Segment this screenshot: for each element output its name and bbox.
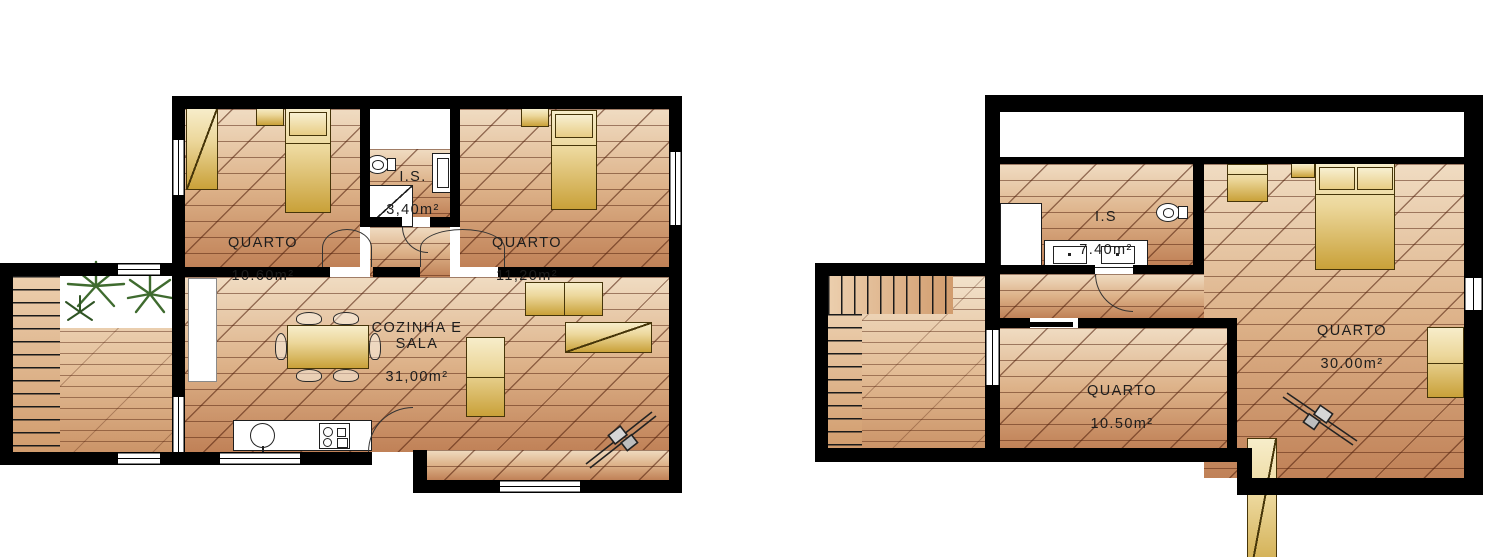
window bbox=[172, 140, 185, 195]
shower-icon bbox=[1000, 203, 1042, 268]
wardrobe-icon bbox=[565, 322, 652, 353]
chair-icon bbox=[296, 369, 322, 382]
angled-tv-fixture-icon bbox=[580, 402, 660, 474]
wall bbox=[985, 448, 1252, 462]
wall bbox=[450, 109, 460, 217]
room-name: I.S bbox=[1095, 209, 1117, 225]
staircase-run bbox=[828, 276, 953, 314]
wall bbox=[1000, 265, 1095, 274]
sink-icon bbox=[250, 423, 275, 448]
wall bbox=[172, 96, 682, 109]
floor-plan-canvas: QUARTO 10.60m² I.S. 3,40m² QUARTO 11,20m… bbox=[0, 0, 1507, 557]
sliding-door bbox=[985, 330, 1000, 385]
room-label-bedroom-3: QUARTO 30.00m² bbox=[1317, 306, 1387, 372]
room-name: I.S. bbox=[399, 169, 426, 185]
room-label-bedroom-4: QUARTO 10.50m² bbox=[1087, 366, 1157, 432]
wall bbox=[360, 109, 370, 217]
wall bbox=[815, 448, 995, 462]
angled-bench-fixture-icon bbox=[1278, 385, 1363, 450]
wall bbox=[815, 263, 985, 276]
wall bbox=[1133, 265, 1193, 274]
double-bed-icon bbox=[1315, 163, 1395, 270]
wall bbox=[1193, 157, 1204, 274]
wall bbox=[1000, 318, 1030, 328]
window bbox=[118, 263, 160, 276]
wall bbox=[1227, 318, 1237, 448]
wall bbox=[430, 217, 460, 227]
sliding-door bbox=[172, 397, 185, 452]
room-name: COZINHA E SALA bbox=[372, 320, 463, 353]
window bbox=[500, 480, 580, 493]
single-bed-icon bbox=[285, 108, 331, 213]
staircase-run bbox=[828, 314, 862, 448]
room-name: QUARTO bbox=[1087, 383, 1157, 399]
window bbox=[1464, 278, 1483, 310]
armchair-icon bbox=[1227, 164, 1268, 202]
room-area: 30.00m² bbox=[1321, 356, 1384, 372]
sofa-icon bbox=[525, 282, 603, 316]
room-name: QUARTO bbox=[492, 235, 562, 251]
sofa-icon bbox=[1427, 327, 1464, 398]
room-label-bedroom-1: QUARTO 10.60m² bbox=[228, 218, 298, 284]
room-area: 3,40m² bbox=[386, 202, 440, 218]
wall bbox=[1000, 157, 1464, 164]
wall bbox=[0, 452, 413, 465]
cabinet-icon bbox=[188, 278, 217, 382]
wall bbox=[985, 385, 1000, 448]
stove-icon bbox=[319, 423, 350, 449]
single-bed-icon bbox=[551, 110, 597, 210]
wall bbox=[1237, 478, 1464, 495]
staircase bbox=[13, 276, 60, 452]
wall bbox=[815, 263, 828, 462]
wall bbox=[373, 267, 420, 277]
nightstand-icon bbox=[1291, 163, 1315, 178]
room-label-bedroom-2: QUARTO 11,20m² bbox=[492, 218, 562, 284]
room-name: QUARTO bbox=[228, 235, 298, 251]
room-label-bathroom-2: I.S 7.40m² bbox=[1079, 192, 1133, 258]
kitchen-counter-icon bbox=[233, 420, 372, 451]
room-area: 7.40m² bbox=[1079, 242, 1133, 258]
room-name: QUARTO bbox=[1317, 323, 1387, 339]
room-area: 31,00m² bbox=[386, 369, 449, 385]
toilet-icon bbox=[1156, 200, 1190, 224]
room-area: 10.60m² bbox=[232, 268, 295, 284]
chair-icon bbox=[275, 333, 287, 360]
window bbox=[118, 452, 160, 465]
wardrobe-icon bbox=[186, 108, 218, 190]
wall bbox=[985, 95, 1483, 112]
door-opening bbox=[372, 452, 413, 465]
door-swing-arc bbox=[322, 229, 372, 267]
room-label-bathroom-1: I.S. 3,40m² bbox=[386, 152, 440, 218]
window bbox=[220, 452, 300, 465]
window bbox=[669, 152, 682, 225]
room-area: 11,20m² bbox=[496, 268, 558, 284]
floor-bathroom-tile bbox=[370, 109, 450, 149]
wall bbox=[0, 263, 13, 465]
chair-icon bbox=[296, 312, 322, 325]
wall bbox=[985, 112, 1000, 330]
room-label-living: COZINHA E SALA 31,00m² bbox=[352, 303, 482, 386]
room-area: 10.50m² bbox=[1091, 416, 1154, 432]
void-area bbox=[1000, 112, 1464, 157]
wall bbox=[360, 217, 402, 227]
nightstand-icon bbox=[256, 107, 284, 126]
nightstand-icon bbox=[521, 108, 549, 127]
wall bbox=[1078, 318, 1237, 328]
door-leaf bbox=[1025, 322, 1073, 327]
